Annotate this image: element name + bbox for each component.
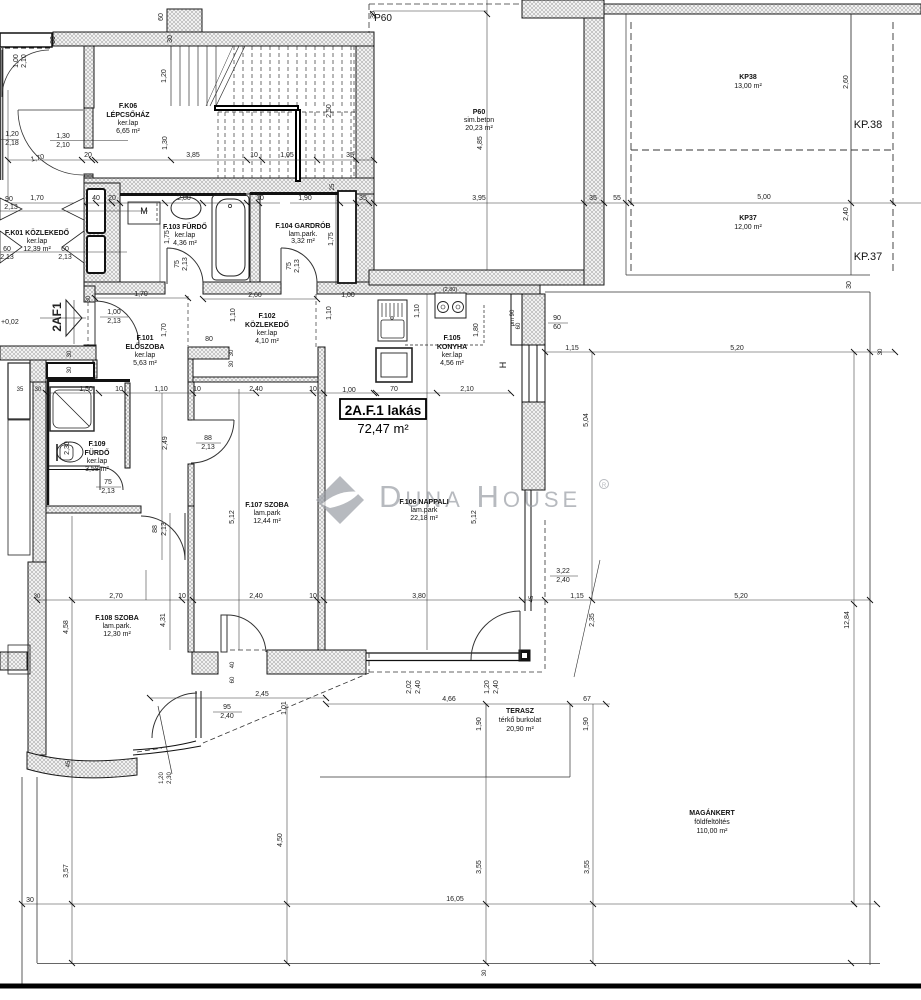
svg-text:H: H [498, 362, 508, 369]
svg-text:LÉPCSŐHÁZ: LÉPCSŐHÁZ [106, 110, 150, 119]
svg-text:2,13: 2,13 [161, 522, 168, 536]
svg-text:35: 35 [17, 387, 24, 393]
svg-text:55: 55 [613, 195, 621, 202]
svg-text:2,13: 2,13 [107, 318, 121, 325]
svg-text:67: 67 [583, 696, 591, 703]
svg-text:2,10: 2,10 [460, 386, 474, 393]
svg-text:2AF1: 2AF1 [50, 302, 64, 332]
svg-text:2,30: 2,30 [167, 772, 173, 784]
svg-text:1,01: 1,01 [281, 701, 288, 715]
svg-text:3,22: 3,22 [556, 568, 570, 575]
svg-text:60: 60 [553, 324, 561, 331]
svg-text:3,32 m²: 3,32 m² [291, 238, 315, 245]
svg-text:1,10: 1,10 [154, 386, 168, 393]
svg-text:1,20: 1,20 [484, 680, 491, 694]
svg-text:KP38: KP38 [739, 74, 757, 81]
svg-text:2,13: 2,13 [101, 488, 115, 495]
svg-text:12,84: 12,84 [844, 611, 851, 629]
svg-text:95: 95 [223, 704, 231, 711]
svg-text:2,40: 2,40 [415, 680, 422, 694]
svg-text:12,30 m²: 12,30 m² [103, 631, 131, 638]
svg-text:ELŐSZOBA: ELŐSZOBA [126, 342, 165, 351]
svg-text:2,60: 2,60 [843, 75, 850, 89]
svg-text:25: 25 [330, 183, 336, 190]
svg-text:2,30: 2,30 [64, 441, 71, 455]
svg-text:2A.F.1 lakás: 2A.F.1 lakás [345, 403, 422, 418]
svg-text:30: 30 [229, 349, 235, 356]
svg-text:75: 75 [174, 260, 181, 268]
svg-text:F.103 FÜRDŐ: F.103 FÜRDŐ [163, 222, 208, 231]
svg-text:2,35: 2,35 [589, 613, 596, 627]
svg-text:60: 60 [230, 676, 236, 683]
svg-text:10: 10 [250, 152, 258, 159]
svg-text:1,00: 1,00 [342, 387, 356, 394]
svg-text:F.K06: F.K06 [119, 103, 137, 110]
svg-text:60: 60 [516, 322, 522, 329]
svg-text:ker.lap: ker.lap [118, 120, 139, 127]
svg-text:1,30: 1,30 [162, 136, 169, 150]
svg-text:30: 30 [34, 594, 41, 600]
svg-text:KP.37: KP.37 [854, 251, 883, 263]
svg-text:4,66: 4,66 [442, 696, 456, 703]
svg-text:3,55: 3,55 [584, 860, 591, 874]
svg-text:22,18 m²: 22,18 m² [410, 515, 438, 522]
svg-text:2,13: 2,13 [0, 254, 14, 261]
svg-text:1,90: 1,90 [298, 195, 312, 202]
svg-text:F.101: F.101 [136, 335, 153, 342]
svg-text:2,40: 2,40 [249, 386, 263, 393]
svg-text:1,70: 1,70 [161, 323, 168, 337]
svg-text:5,00: 5,00 [757, 194, 771, 201]
svg-text:12,44 m²: 12,44 m² [253, 518, 281, 525]
svg-text:5,20: 5,20 [730, 345, 744, 352]
svg-text:20: 20 [84, 152, 92, 159]
svg-text:2,50: 2,50 [326, 104, 333, 118]
svg-text:F.109: F.109 [88, 441, 105, 448]
svg-text:1,15: 1,15 [570, 593, 584, 600]
svg-text:75: 75 [286, 262, 293, 270]
svg-text:F.104 GARDRÓB: F.104 GARDRÓB [275, 221, 330, 230]
svg-text:1,30: 1,30 [56, 133, 70, 140]
svg-text:2,13: 2,13 [294, 259, 301, 273]
svg-text:20,23 m²: 20,23 m² [465, 125, 493, 132]
svg-text:35: 35 [346, 152, 354, 159]
svg-text:F.108 SZOBA: F.108 SZOBA [95, 615, 139, 622]
svg-text:70: 70 [390, 386, 398, 393]
svg-text:75: 75 [104, 479, 112, 486]
svg-text:30: 30 [67, 350, 73, 357]
svg-text:1,80: 1,80 [473, 323, 480, 337]
svg-text:2,10: 2,10 [56, 142, 70, 149]
svg-text:30: 30 [86, 295, 92, 302]
svg-text:4,56 m²: 4,56 m² [440, 360, 464, 367]
svg-text:lam.park: lam.park [411, 507, 438, 514]
svg-text:72,47 m²: 72,47 m² [357, 421, 409, 436]
svg-text:F.102: F.102 [258, 313, 275, 320]
svg-text:1,50: 1,50 [79, 386, 93, 393]
svg-text:1,05: 1,05 [280, 152, 294, 159]
svg-text:1,00: 1,00 [107, 309, 121, 316]
svg-text:F.105: F.105 [443, 335, 460, 342]
svg-text:1,90: 1,90 [583, 717, 590, 731]
svg-text:30: 30 [482, 969, 488, 976]
svg-text:+0,02: +0,02 [1, 319, 19, 326]
svg-text:lam.park: lam.park [254, 510, 281, 517]
svg-text:F.106 NAPPALI: F.106 NAPPALI [399, 499, 448, 506]
svg-text:2,70: 2,70 [109, 593, 123, 600]
svg-text:1,90: 1,90 [476, 717, 483, 731]
svg-text:térkő burkolat: térkő burkolat [499, 717, 541, 724]
svg-text:FÜRDŐ: FÜRDŐ [85, 448, 110, 457]
svg-text:13,00 m²: 13,00 m² [734, 83, 762, 90]
svg-text:30: 30 [846, 281, 853, 289]
svg-text:2,40: 2,40 [493, 680, 500, 694]
svg-text:4,58: 4,58 [63, 620, 70, 634]
svg-text:10: 10 [193, 386, 201, 393]
svg-text:F.K01 KÖZLEKEDŐ: F.K01 KÖZLEKEDŐ [5, 228, 70, 237]
svg-text:4,50: 4,50 [277, 833, 284, 847]
svg-text:4,10 m²: 4,10 m² [255, 338, 279, 345]
svg-text:3,57: 3,57 [63, 864, 70, 878]
svg-text:5,12: 5,12 [229, 510, 236, 524]
svg-text:2,80: 2,80 [177, 195, 191, 202]
svg-text:3,80: 3,80 [412, 593, 426, 600]
svg-text:40: 40 [92, 195, 100, 202]
svg-text:2,13: 2,13 [4, 204, 18, 211]
svg-text:2,40: 2,40 [556, 577, 570, 584]
svg-text:2,02: 2,02 [406, 680, 413, 694]
svg-text:ker.lap: ker.lap [442, 352, 463, 359]
svg-text:60: 60 [158, 13, 165, 21]
svg-text:80: 80 [205, 336, 213, 343]
svg-text:lam.park.: lam.park. [289, 231, 318, 238]
svg-text:R: R [602, 483, 607, 489]
svg-text:5,04: 5,04 [583, 413, 590, 427]
svg-text:1,75: 1,75 [164, 230, 171, 244]
svg-text:30: 30 [50, 36, 57, 44]
svg-text:110,00 m²: 110,00 m² [697, 828, 729, 835]
svg-text:35: 35 [589, 195, 597, 202]
svg-text:1,10: 1,10 [326, 306, 333, 320]
svg-text:10: 10 [115, 386, 123, 393]
svg-text:MAGÁNKERT: MAGÁNKERT [689, 808, 735, 817]
svg-text:ker.lap: ker.lap [175, 232, 196, 239]
svg-text:10: 10 [309, 386, 317, 393]
svg-text:30: 30 [878, 348, 884, 355]
svg-text:lam.park.: lam.park. [103, 623, 132, 630]
svg-text:4,36 m²: 4,36 m² [173, 240, 197, 247]
svg-text:ker.lap: ker.lap [135, 352, 156, 359]
svg-text:2,10: 2,10 [21, 54, 28, 68]
svg-text:16,05: 16,05 [446, 896, 464, 903]
svg-text:30: 30 [229, 360, 235, 367]
svg-text:KONYHA: KONYHA [437, 344, 467, 351]
svg-text:45: 45 [529, 595, 535, 602]
svg-text:3,95: 3,95 [472, 195, 486, 202]
svg-text:90: 90 [5, 196, 13, 203]
svg-text:88: 88 [204, 435, 212, 442]
svg-text:2,40: 2,40 [220, 713, 234, 720]
svg-text:10: 10 [256, 195, 264, 202]
svg-text:ker.lap: ker.lap [87, 458, 108, 465]
svg-text:1,00: 1,00 [13, 54, 20, 68]
svg-text:2,40: 2,40 [843, 207, 850, 221]
svg-text:3,58 m²: 3,58 m² [85, 466, 109, 473]
svg-text:6,65 m²: 6,65 m² [116, 128, 140, 135]
svg-text:2,40: 2,40 [249, 593, 263, 600]
svg-text:1,20: 1,20 [159, 772, 165, 784]
svg-text:KÖZLEKEDŐ: KÖZLEKEDŐ [245, 320, 290, 329]
svg-text:88: 88 [152, 525, 159, 533]
svg-text:10: 10 [309, 593, 317, 600]
svg-text:ker.lap: ker.lap [257, 330, 278, 337]
svg-text:35: 35 [359, 195, 367, 202]
svg-text:2,13: 2,13 [58, 254, 72, 261]
svg-text:30: 30 [67, 366, 73, 373]
svg-text:földfeltöltés: földfeltöltés [694, 819, 730, 826]
svg-text:40: 40 [230, 661, 236, 668]
svg-text:(2,80): (2,80) [443, 287, 458, 293]
svg-text:1,75: 1,75 [328, 232, 335, 246]
svg-text:20: 20 [108, 195, 116, 202]
svg-text:30: 30 [35, 387, 42, 393]
svg-text:2,13: 2,13 [182, 257, 189, 271]
svg-text:KP.38: KP.38 [854, 119, 883, 131]
svg-text:P60: P60 [473, 109, 486, 116]
svg-text:5,63 m²: 5,63 m² [133, 360, 157, 367]
svg-text:3,85: 3,85 [186, 152, 200, 159]
svg-text:5,12: 5,12 [471, 510, 478, 524]
svg-text:1,20: 1,20 [5, 131, 19, 138]
svg-text:TERASZ: TERASZ [506, 708, 535, 715]
svg-text:30: 30 [370, 11, 377, 19]
svg-text:F.107 SZOBA: F.107 SZOBA [245, 502, 289, 509]
svg-text:1,10: 1,10 [230, 308, 237, 322]
svg-text:2,18: 2,18 [5, 140, 19, 147]
svg-text:KP37: KP37 [739, 215, 757, 222]
svg-text:ker.lap: ker.lap [27, 238, 48, 245]
svg-text:5,20: 5,20 [734, 593, 748, 600]
svg-text:Duna House: Duna House [379, 479, 581, 514]
svg-text:sim.beton: sim.beton [464, 117, 494, 124]
svg-text:1,15: 1,15 [565, 345, 579, 352]
svg-text:1,20: 1,20 [161, 69, 168, 83]
svg-text:1,70: 1,70 [30, 195, 44, 202]
svg-text:2,45: 2,45 [255, 691, 269, 698]
svg-text:10: 10 [178, 593, 186, 600]
svg-text:4,85: 4,85 [477, 136, 484, 150]
svg-text:3,55: 3,55 [476, 860, 483, 874]
svg-text:20,90 m²: 20,90 m² [506, 726, 534, 733]
svg-text:2,49: 2,49 [162, 436, 169, 450]
svg-text:90: 90 [553, 315, 561, 322]
svg-text:1,70: 1,70 [134, 291, 148, 298]
svg-text:4,31: 4,31 [160, 613, 167, 627]
svg-text:1,10: 1,10 [414, 304, 421, 318]
svg-text:12,00 m²: 12,00 m² [734, 224, 762, 231]
svg-text:30: 30 [26, 897, 34, 904]
svg-text:2,13: 2,13 [201, 444, 215, 451]
svg-text:30: 30 [167, 35, 174, 43]
svg-text:1,00: 1,00 [341, 292, 355, 299]
svg-text:2,60: 2,60 [248, 292, 262, 299]
svg-text:45: 45 [66, 760, 72, 767]
